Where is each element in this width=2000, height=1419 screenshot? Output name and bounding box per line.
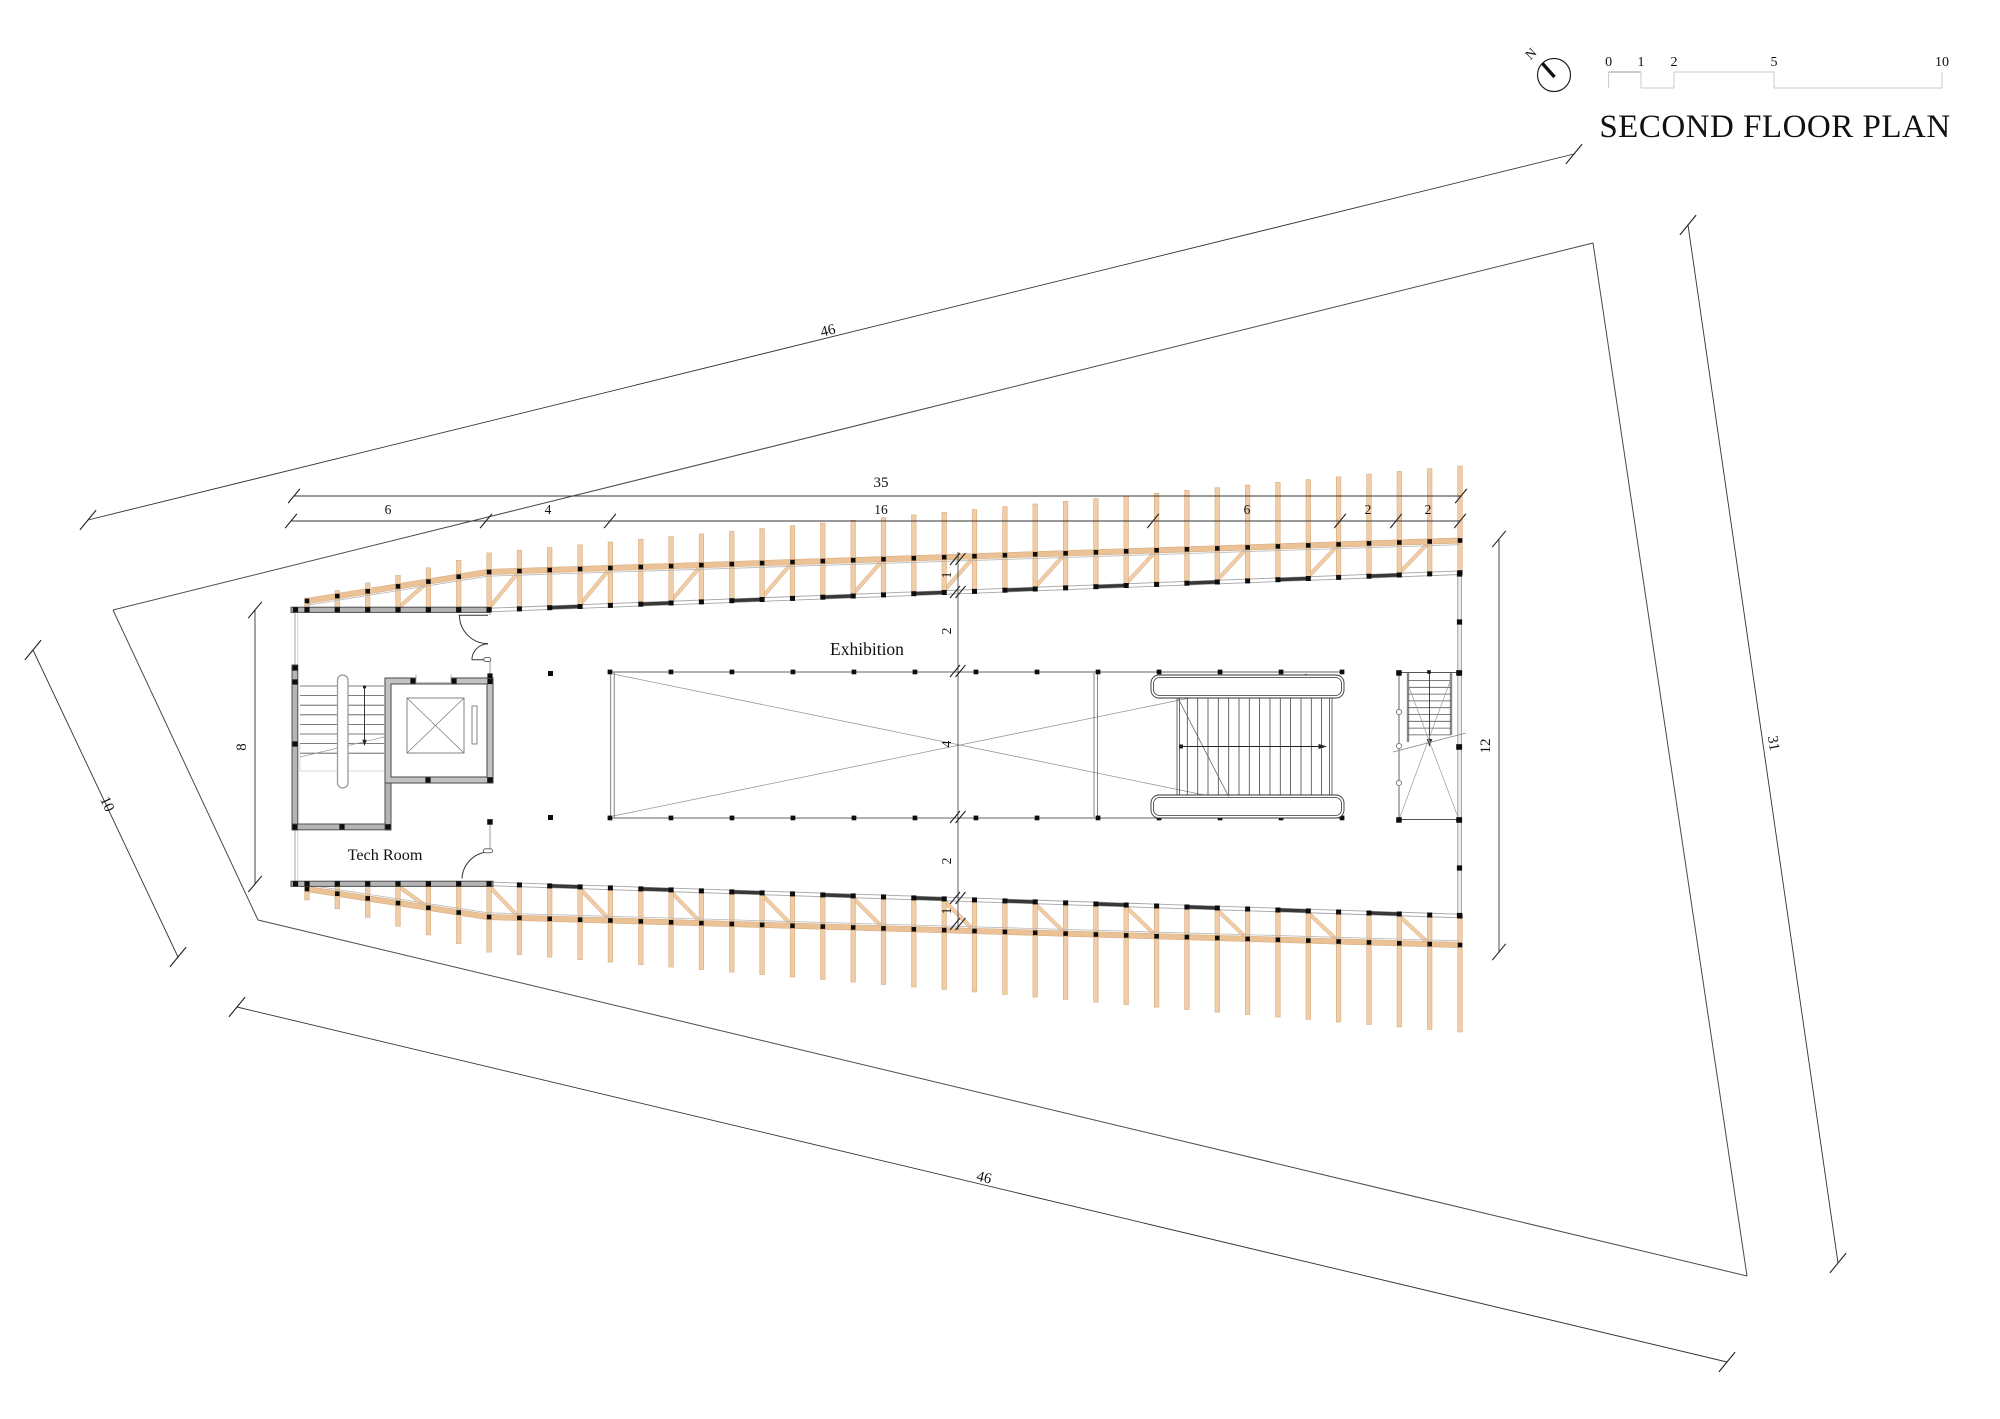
svg-text:1: 1 bbox=[939, 908, 954, 915]
svg-text:2: 2 bbox=[939, 858, 954, 865]
svg-text:2: 2 bbox=[1365, 502, 1372, 517]
svg-text:Tech Room: Tech Room bbox=[348, 846, 423, 864]
svg-text:5: 5 bbox=[1771, 55, 1778, 70]
svg-text:8: 8 bbox=[234, 743, 250, 751]
svg-text:35: 35 bbox=[874, 475, 889, 491]
svg-text:2: 2 bbox=[1671, 55, 1678, 70]
svg-text:1: 1 bbox=[939, 572, 954, 579]
svg-text:1: 1 bbox=[1638, 55, 1645, 70]
svg-text:0: 0 bbox=[1605, 55, 1612, 70]
svg-text:6: 6 bbox=[1244, 502, 1251, 517]
svg-text:10: 10 bbox=[1935, 55, 1949, 70]
svg-text:12: 12 bbox=[1478, 739, 1494, 754]
svg-text:4: 4 bbox=[939, 740, 954, 747]
svg-text:2: 2 bbox=[939, 628, 954, 635]
svg-text:6: 6 bbox=[385, 502, 392, 517]
svg-text:31: 31 bbox=[1764, 735, 1782, 753]
svg-text:2: 2 bbox=[1425, 502, 1432, 517]
svg-text:Exhibition: Exhibition bbox=[830, 639, 904, 659]
svg-text:SECOND FLOOR PLAN: SECOND FLOOR PLAN bbox=[1599, 109, 1950, 145]
svg-text:4: 4 bbox=[545, 502, 552, 517]
svg-text:16: 16 bbox=[874, 502, 888, 517]
